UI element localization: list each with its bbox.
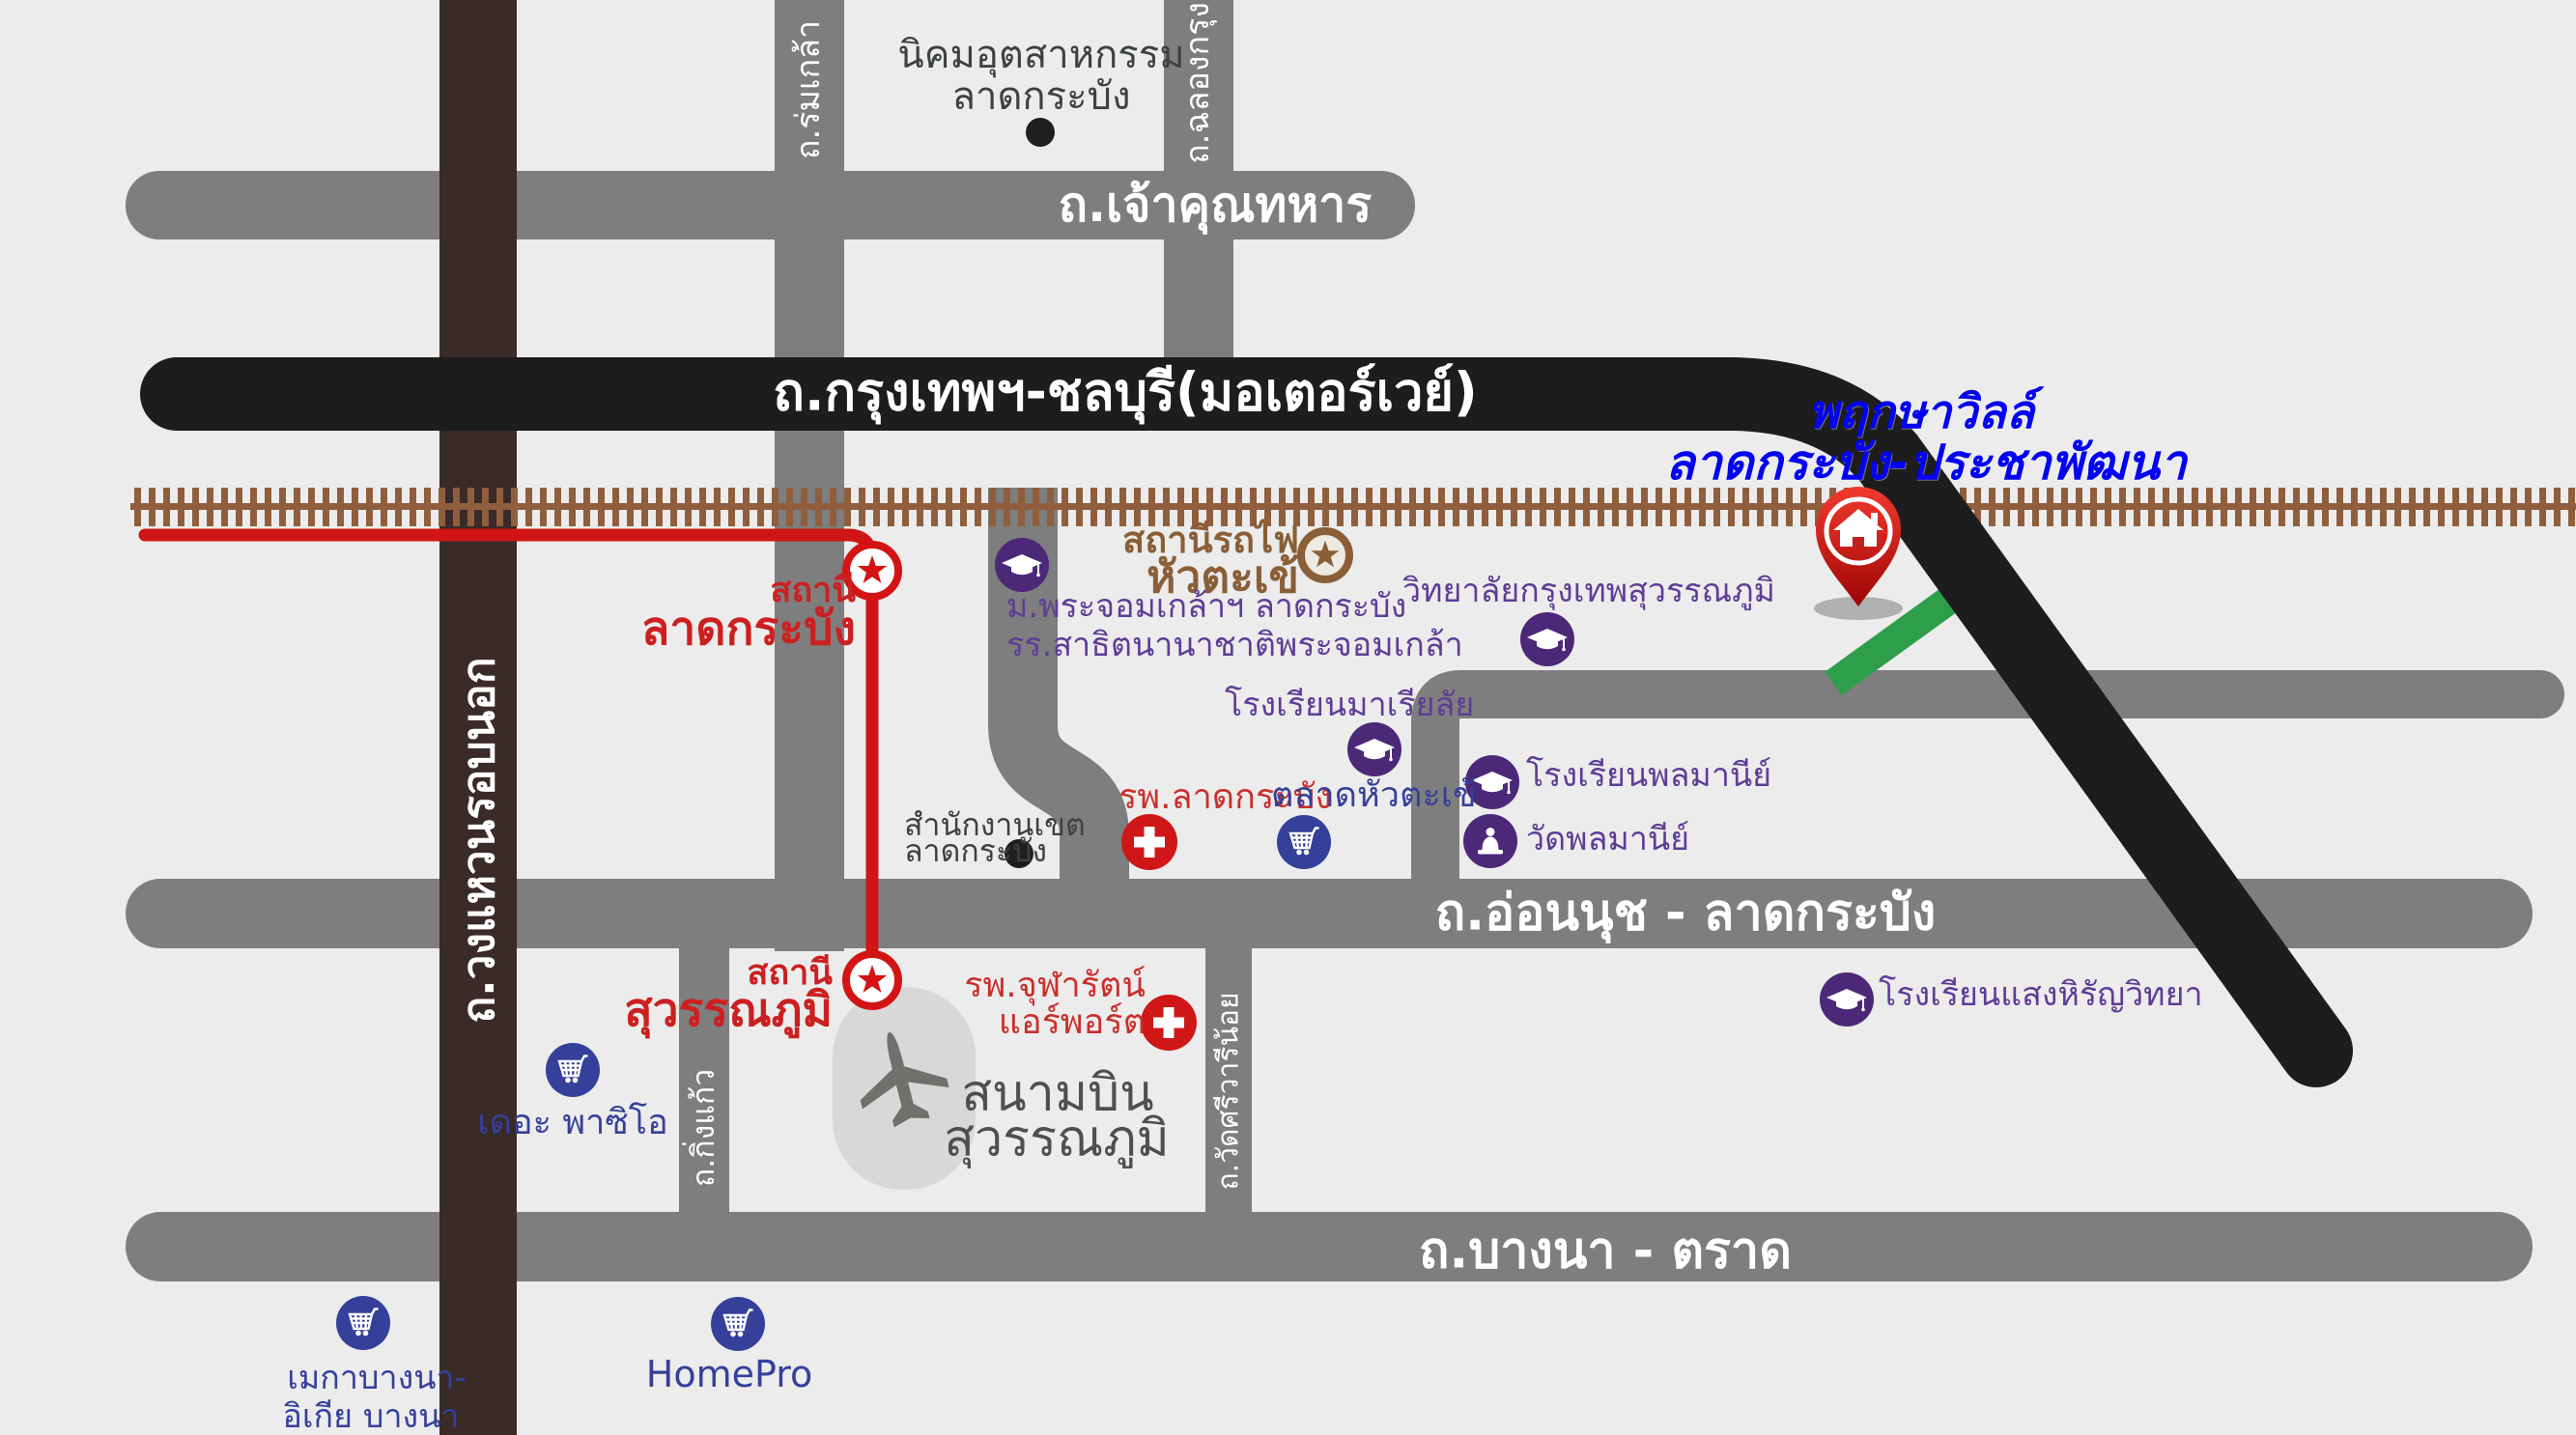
paseo-mall-label: เดอะ พาซิโอ	[477, 1105, 667, 1141]
station-latkrabang-name: ลาดกระบัง	[641, 605, 856, 653]
road-label-romklao: ถ.ร่มเกล้า	[792, 20, 827, 159]
road-label-kingkaeo: ถ.กิ่งแก้ว	[688, 1069, 721, 1188]
homepro-label: HomePro	[646, 1356, 813, 1394]
airport-label-line2: สุวรรณภูมิ	[944, 1113, 1170, 1167]
phonmani-school-label: โรงเรียนพลมานีย์	[1526, 759, 1771, 794]
shopping-cart-icon	[711, 1297, 765, 1351]
road-label-chalongkrung: ถ.ฉลองกรุง	[1181, 2, 1216, 164]
road-label-motorway: ถ.กรุงเทพฯ-ชลบุรี(มอเตอร์เวย์)	[773, 366, 1477, 421]
graduation-cap-icon	[1520, 612, 1574, 666]
shopping-cart-icon	[336, 1296, 390, 1350]
road-label-onnut-latkrabang: ถ.อ่อนนุช - ลาดกระบัง	[1435, 887, 1936, 941]
graduation-cap-icon	[1820, 972, 1874, 1027]
shopping-cart-icon	[1277, 815, 1331, 869]
saeng-hirun-school-label: โรงเรียนแสงหิรัญวิทยา	[1879, 978, 2203, 1013]
station-star-icon	[846, 954, 898, 1006]
kmitl-label-line1: ม.พระจอมเกล้าฯ ลาดกระบัง	[1006, 590, 1406, 625]
kmitl-label-line2: รร.สาธิตนานาชาติพระจอมเกล้า	[1006, 629, 1463, 663]
road-label-chaokhun-thahan: ถ.เจ้าคุณทหาร	[1059, 180, 1372, 231]
station-star-icon	[1301, 531, 1349, 579]
chularat-hospital-label-line1: รพ.จุฬารัตน์	[964, 968, 1146, 1004]
road-label-wat-sriwari-noi: ถ.วัดศรีวารีน้อย	[1213, 992, 1244, 1190]
megabangna-label-line1: เมกาบางนา-	[287, 1362, 467, 1396]
district-office-label-line2: ลาดกระบัง	[904, 835, 1047, 868]
project-name-line1: พฤกษาวิลล์	[1808, 388, 2034, 436]
marialai-school-label: โรงเรียนมาเรียลัย	[1225, 689, 1474, 723]
industrial-estate-label-line2: ลาดกระบัง	[951, 76, 1130, 117]
road-label-outer-ring: ถ.วงแหวนรอบนอก	[455, 657, 501, 1023]
chularat-hospital-label-line2: แอร์พอร์ต	[999, 1004, 1146, 1041]
project-name-line2: ลาดกระบัง-ประชาพัฒนา	[1665, 437, 2187, 489]
hospital-cross-icon	[1121, 814, 1177, 870]
shopping-cart-icon	[546, 1043, 600, 1097]
huatakhe-market-label: ตลาดหัวตะเข้	[1271, 777, 1477, 814]
hospital-cross-icon	[1141, 995, 1197, 1051]
road-label-bangna-trat: ถ.บางนา - ตราด	[1419, 1225, 1792, 1279]
temple-icon	[1463, 814, 1517, 868]
station-suvarnabhumi-name: สุวรรณภูมิ	[624, 986, 833, 1034]
graduation-cap-icon	[995, 538, 1049, 592]
location-map: ถ.วงแหวนรอบนอก ถ.ร่มเกล้า ถ.ฉลองกรุง ถ.เ…	[0, 0, 2576, 1435]
railway-line	[130, 488, 2576, 526]
graduation-cap-icon	[1347, 722, 1401, 776]
industrial-estate-label-line1: นิคมอุตสาหกรรม	[897, 35, 1184, 75]
poi-dot-icon	[1026, 118, 1055, 147]
bangkok-suvarnabhumi-college-label: วิทยาลัยกรุงเทพสุวรรณภูมิ	[1402, 575, 1775, 609]
phonmani-temple-label: วัดพลมานีย์	[1526, 823, 1689, 858]
megabangna-label-line2: อิเกีย บางนา	[283, 1400, 460, 1435]
